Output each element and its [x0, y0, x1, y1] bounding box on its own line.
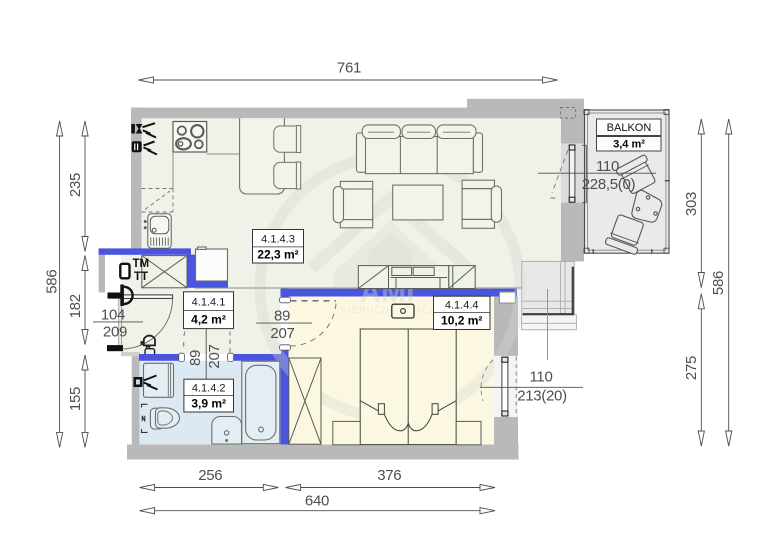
svg-text:TT: TT [134, 271, 148, 283]
svg-text:4.1.4.4: 4.1.4.4 [445, 299, 479, 311]
svg-text:BALKON: BALKON [607, 122, 652, 134]
svg-text:761: 761 [337, 60, 361, 77]
svg-text:22,3 m²: 22,3 m² [257, 248, 298, 262]
svg-text:110: 110 [529, 369, 552, 386]
svg-text:4.1.4.2: 4.1.4.2 [192, 382, 226, 394]
svg-text:89: 89 [274, 308, 290, 325]
svg-text:10,2 m²: 10,2 m² [441, 314, 482, 328]
svg-text:3,4 m²: 3,4 m² [613, 139, 645, 151]
svg-text:NIERUCHOMOŚCI: NIERUCHOMOŚCI [340, 304, 433, 315]
svg-text:209: 209 [103, 324, 127, 341]
svg-text:89: 89 [187, 350, 204, 366]
svg-text:4,2 m²: 4,2 m² [191, 313, 226, 327]
svg-text:256: 256 [198, 467, 222, 484]
svg-text:213(20): 213(20) [517, 388, 567, 405]
svg-text:640: 640 [305, 493, 329, 510]
svg-text:275: 275 [683, 356, 700, 380]
svg-text:4.1.4.3: 4.1.4.3 [261, 234, 295, 246]
svg-text:303: 303 [683, 192, 700, 216]
svg-text:104: 104 [101, 307, 125, 324]
svg-text:586: 586 [44, 270, 61, 294]
svg-text:235: 235 [67, 173, 84, 197]
svg-text:3,9 m²: 3,9 m² [191, 397, 226, 411]
svg-text:586: 586 [710, 271, 727, 295]
svg-text:155: 155 [67, 387, 84, 411]
svg-text:376: 376 [377, 467, 401, 484]
svg-text:182: 182 [67, 294, 84, 318]
svg-text:110: 110 [596, 158, 619, 175]
svg-text:4.1.4.1: 4.1.4.1 [192, 297, 226, 309]
svg-text:TM: TM [133, 258, 150, 270]
svg-text:207: 207 [270, 325, 294, 342]
svg-text:207: 207 [206, 344, 223, 368]
svg-text:228,5(0): 228,5(0) [582, 176, 636, 193]
